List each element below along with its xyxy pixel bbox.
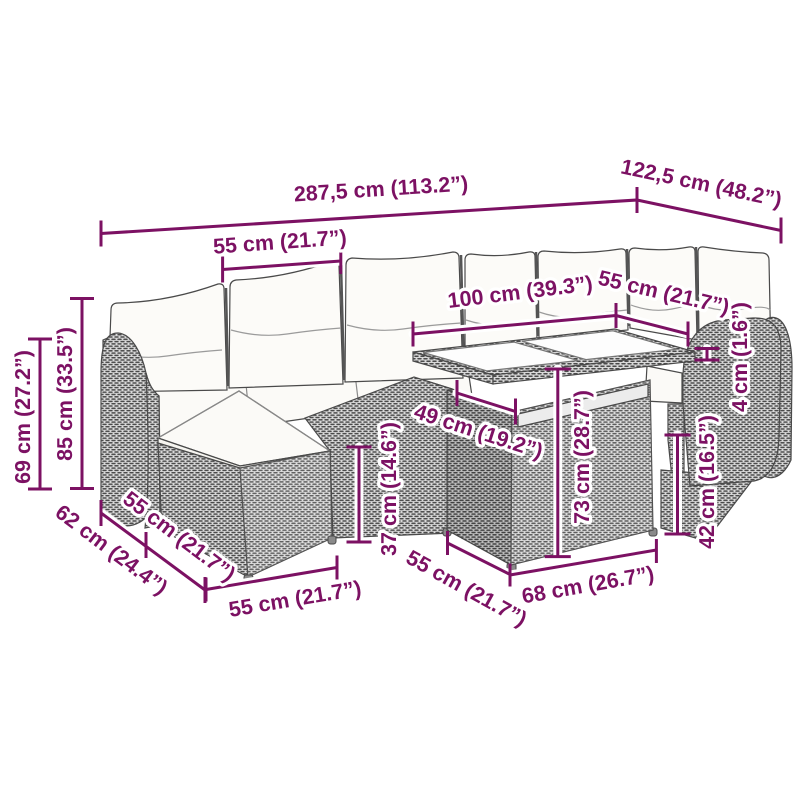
svg-text:4 cm (1.6”): 4 cm (1.6”)	[728, 302, 752, 412]
svg-text:85 cm (33.5”): 85 cm (33.5”)	[53, 327, 77, 461]
svg-text:55 cm (21.7”): 55 cm (21.7”)	[212, 225, 347, 258]
svg-text:287,5 cm (113.2”): 287,5 cm (113.2”)	[293, 172, 469, 207]
svg-text:73 cm (28.7”): 73 cm (28.7”)	[570, 390, 594, 524]
svg-text:42 cm (16.5”): 42 cm (16.5”)	[695, 415, 719, 549]
svg-text:37 cm (14.6”): 37 cm (14.6”)	[377, 422, 401, 556]
svg-text:69 cm (27.2”): 69 cm (27.2”)	[11, 350, 35, 484]
